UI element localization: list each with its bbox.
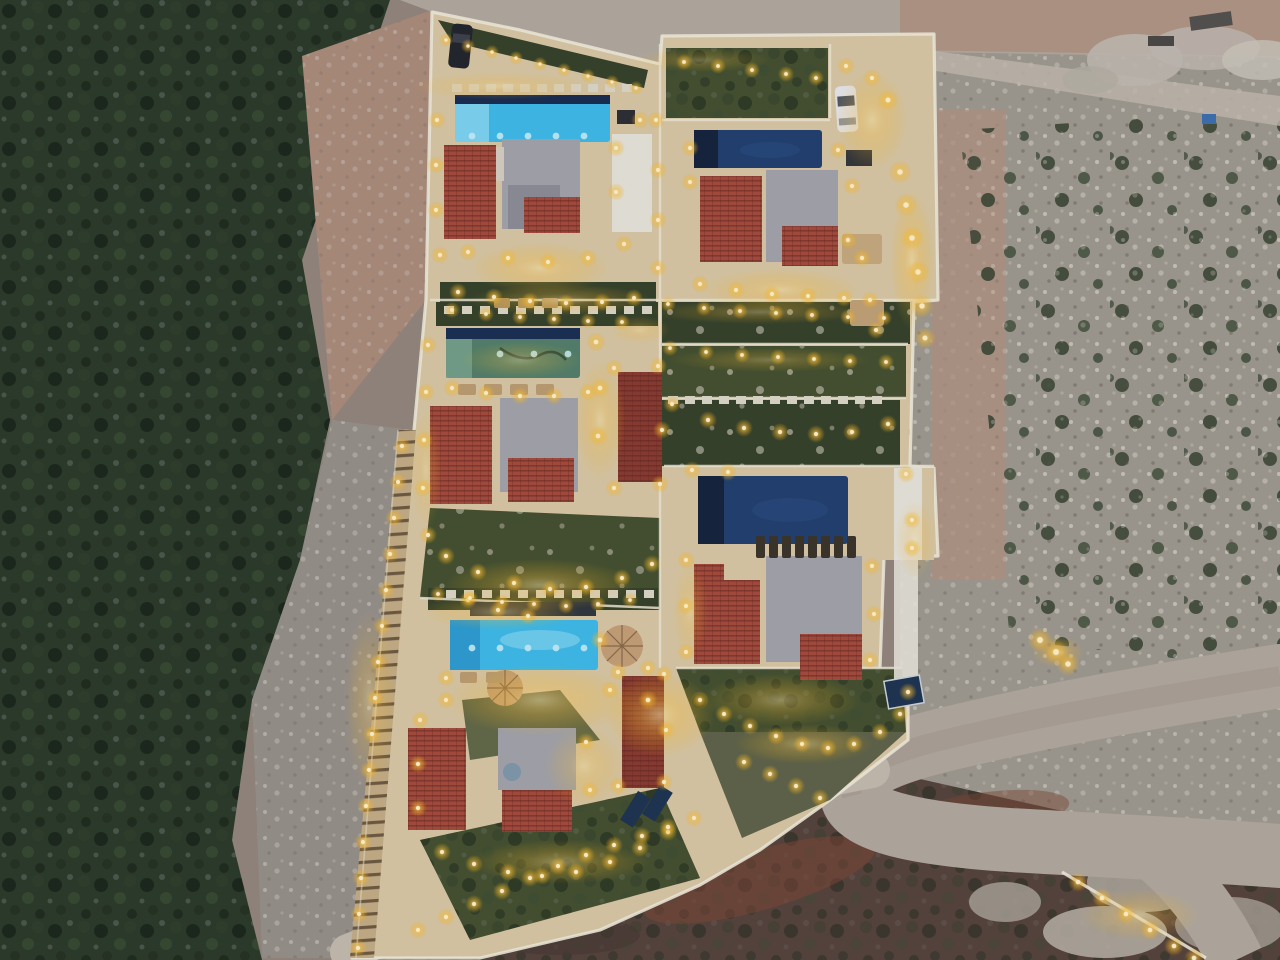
dusk-tint-overlay — [0, 0, 1280, 960]
aerial-photo — [0, 0, 1280, 960]
aerial-photo-stage — [0, 0, 1280, 960]
